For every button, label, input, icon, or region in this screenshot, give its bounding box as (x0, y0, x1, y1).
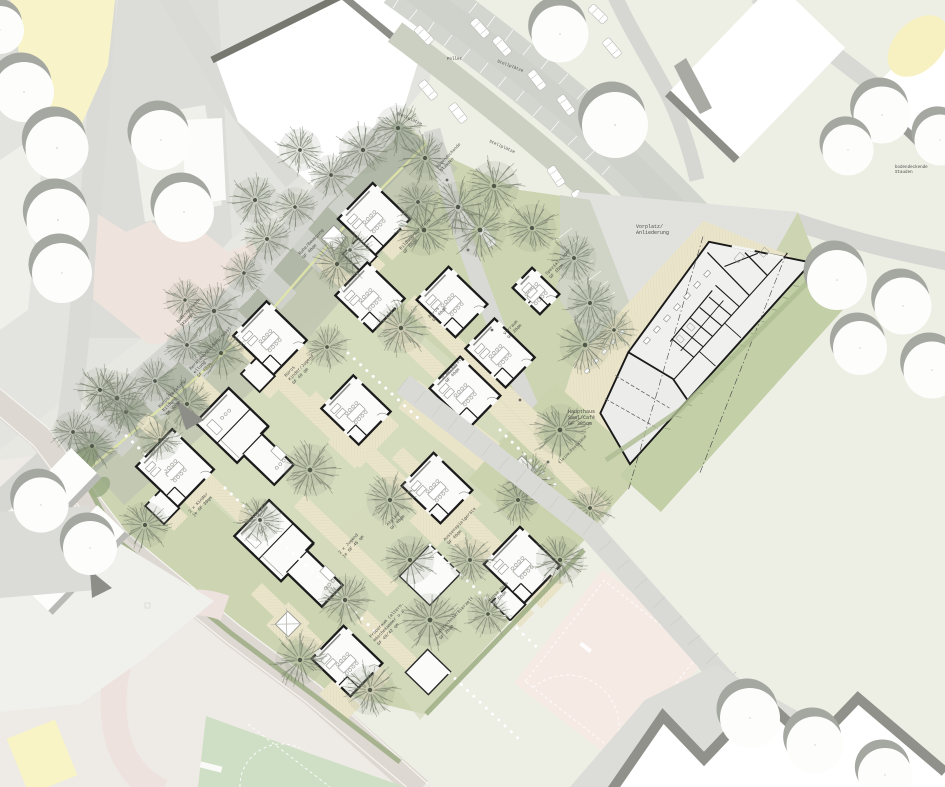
svg-text:Stauden: Stauden (895, 170, 913, 175)
svg-text:GF 385qm: GF 385qm (568, 421, 592, 427)
svg-text:Anliederung: Anliederung (636, 230, 669, 236)
svg-text:Poller: Poller (447, 57, 463, 62)
svg-text:bodendeckende: bodendeckende (895, 165, 928, 170)
